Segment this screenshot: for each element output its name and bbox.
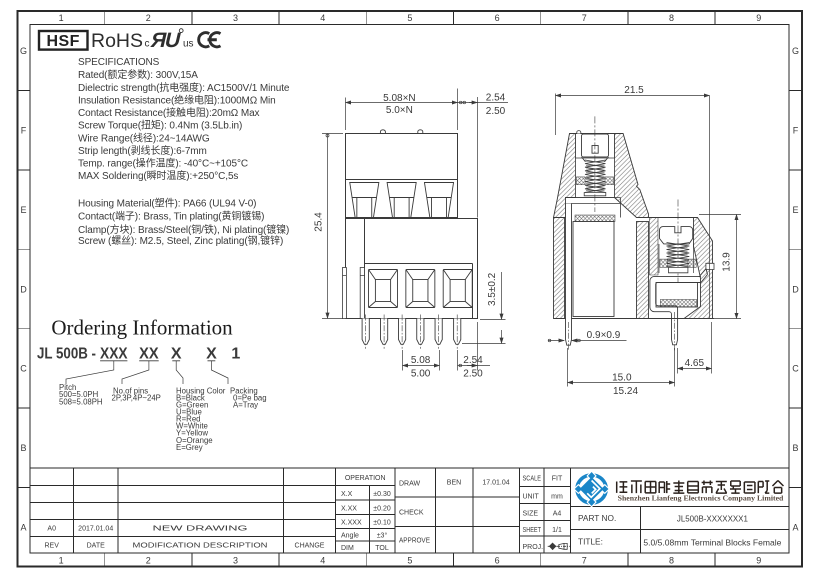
svg-text:C: C [20,364,27,374]
svg-text:F: F [793,126,799,136]
svg-text:6: 6 [495,13,500,23]
svg-text:MODIFICATION DESCRIPTION: MODIFICATION DESCRIPTION [133,543,268,550]
svg-text:15.24: 15.24 [613,386,638,397]
svg-text:E=Grey: E=Grey [176,443,203,452]
svg-text:Clamp(方块): Brass/Steel(铜/铁), N: Clamp(方块): Brass/Steel(铜/铁), Ni plating(… [78,223,289,236]
svg-text:4: 4 [320,556,325,566]
svg-text:JL500B-XXXXXXX1: JL500B-XXXXXXX1 [677,514,748,524]
svg-text:2: 2 [146,13,151,23]
svg-text:B: B [792,443,798,453]
svg-text:CHECK: CHECK [399,510,424,517]
svg-text:2P,3P,4P~24P: 2P,3P,4P~24P [112,394,161,403]
svg-text:Insulation Resistance(绝缘电阻):10: Insulation Resistance(绝缘电阻):1000MΩ Min [78,94,276,107]
svg-text:X: X [171,346,182,363]
svg-text:Housing Material(塑件): PA66 (UL: Housing Material(塑件): PA66 (UL94 V-0) [78,198,256,210]
svg-text:5.08×N: 5.08×N [383,93,416,104]
svg-text:us: us [183,39,194,50]
svg-text:508=5.08PH: 508=5.08PH [59,397,103,406]
svg-text:5.0×N: 5.0×N [386,105,413,116]
svg-text:mm: mm [551,494,563,501]
svg-text:±0.10: ±0.10 [373,520,391,527]
svg-text:2.50: 2.50 [463,369,483,380]
svg-text:A: A [792,523,798,533]
svg-text:5: 5 [407,13,412,23]
svg-text:5.0/5.08mm Terminal Blocks Fem: 5.0/5.08mm Terminal Blocks Female [643,538,781,548]
svg-text:2.50: 2.50 [486,106,506,117]
svg-text:25.4: 25.4 [314,212,325,232]
svg-text:0.9×0.9: 0.9×0.9 [587,330,621,341]
svg-text:Screw Torque(扭矩): 0.4Nm (3.5Lb: Screw Torque(扭矩): 0.4Nm (3.5Lb.in) [78,119,242,132]
svg-text:SHEET: SHEET [523,527,542,534]
svg-text:Contact(端子): Brass, Tin platin: Contact(端子): Brass, Tin plating(黄铜镀锡) [78,209,264,222]
svg-text:±3°: ±3° [377,532,388,540]
svg-text:Rated(额定参数): 300V,15A: Rated(额定参数): 300V,15A [78,68,198,81]
svg-text:G: G [792,46,799,56]
svg-text:Screw (螺丝): M2.5, Steel, Zinc: Screw (螺丝): M2.5, Steel, Zinc plating(钢,… [78,234,283,247]
svg-text:UNIT: UNIT [523,494,540,501]
svg-text:TITLE:: TITLE: [578,537,603,547]
svg-text:X.XX: X.XX [341,506,357,513]
svg-text:A4: A4 [553,511,562,518]
svg-text:5.08: 5.08 [411,355,431,366]
svg-text:HSF: HSF [46,33,80,50]
svg-text:17.01.04: 17.01.04 [482,480,509,487]
svg-text:F: F [21,126,27,136]
svg-text:XXX: XXX [100,346,128,363]
svg-text:Temp. range(操作温度): -40°C~+105°: Temp. range(操作温度): -40°C~+105°C [78,157,248,170]
svg-text:Wire Range(线径):24~14AWG: Wire Range(线径):24~14AWG [78,132,210,145]
svg-text:X.X: X.X [341,491,353,498]
svg-text:DIM: DIM [341,545,354,552]
svg-text:APPROVE: APPROVE [399,538,430,545]
svg-text:E: E [20,205,26,215]
svg-text:SCALE: SCALE [523,476,542,483]
svg-text:9: 9 [756,13,761,23]
svg-text:1: 1 [59,13,64,23]
svg-text:4: 4 [320,13,325,23]
svg-text:RoHS: RoHS [91,30,143,52]
svg-text:A=Tray: A=Tray [233,401,258,410]
svg-text:5: 5 [407,556,412,566]
svg-text:OPERATION: OPERATION [345,475,386,482]
svg-text:PART NO.: PART NO. [578,513,616,523]
svg-text:MAX Soldering(瞬时温度):+250°C,5s: MAX Soldering(瞬时温度):+250°C,5s [78,169,238,182]
svg-text:5.00: 5.00 [411,369,431,380]
svg-text:1/1: 1/1 [552,527,562,534]
svg-text:9: 9 [756,556,761,566]
svg-text:2.54: 2.54 [463,355,483,366]
svg-text:±0.20: ±0.20 [373,506,391,513]
svg-text:JL 500B -: JL 500B - [37,346,96,363]
svg-text:C: C [792,364,799,374]
svg-text:D: D [20,284,27,294]
svg-text:FIT: FIT [552,476,563,483]
svg-text:G: G [20,46,27,56]
svg-text:DRAW: DRAW [399,481,421,488]
svg-text:REV: REV [44,543,59,550]
svg-text:8: 8 [669,556,674,566]
svg-text:Shenzhen Lianfeng Electronics: Shenzhen Lianfeng Electronics Company Li… [618,494,784,503]
svg-text:DATE: DATE [87,543,105,550]
svg-text:Angle: Angle [341,533,359,540]
svg-text:15.0: 15.0 [612,372,632,383]
svg-text:3: 3 [233,556,238,566]
svg-text:7: 7 [582,556,587,566]
svg-text:4.65: 4.65 [685,358,705,369]
svg-text:Strip length(剥线长度):6-7mm: Strip length(剥线长度):6-7mm [78,144,207,157]
svg-text:TOL: TOL [375,545,389,552]
svg-text:A: A [20,523,26,533]
svg-text:PROJ.: PROJ. [523,544,544,551]
svg-text:1: 1 [59,556,64,566]
svg-text:Contact Resistance(接触电阻):20mΩ: Contact Resistance(接触电阻):20mΩ Max [78,106,260,119]
svg-text:6: 6 [495,556,500,566]
svg-text:c: c [145,39,150,50]
svg-text:XX: XX [139,346,159,363]
svg-text:NEW DRAWING: NEW DRAWING [153,526,248,533]
svg-text:8: 8 [669,13,674,23]
svg-text:SIZE: SIZE [523,511,539,518]
svg-text:2.54: 2.54 [486,92,506,103]
svg-text:E: E [792,205,798,215]
svg-text:B: B [20,443,26,453]
svg-text:2: 2 [146,556,151,566]
svg-text:A0: A0 [47,526,56,533]
svg-text:SPECIFICATIONS: SPECIFICATIONS [78,57,160,68]
svg-text:Ordering Information: Ordering Information [51,316,233,340]
svg-text:Dielectric strength(抗电强度): AC1: Dielectric strength(抗电强度): AC1500V/1 Min… [78,81,290,94]
svg-text:BEN: BEN [447,480,461,487]
svg-text:7: 7 [582,13,587,23]
svg-text:1: 1 [231,346,240,363]
svg-text:3: 3 [233,13,238,23]
svg-text:±0.30: ±0.30 [373,491,391,498]
svg-text:X: X [206,346,217,363]
svg-text:13.9: 13.9 [722,252,733,272]
svg-text:D: D [792,284,799,294]
svg-text:CHANGE: CHANGE [295,543,325,550]
svg-text:21.5: 21.5 [624,85,644,96]
svg-text:2017.01.04: 2017.01.04 [78,526,113,533]
svg-text:X.XXX: X.XXX [341,520,362,527]
svg-text:3.5±0.2: 3.5±0.2 [487,272,498,306]
